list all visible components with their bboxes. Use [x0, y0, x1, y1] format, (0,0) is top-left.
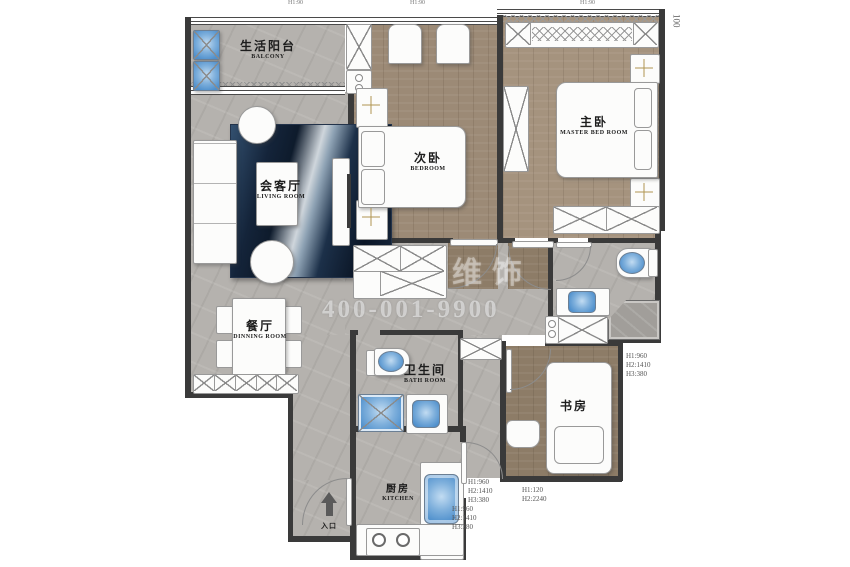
- storage-cabinet: [346, 24, 372, 70]
- bathroom-label-en: BATH ROOM: [370, 378, 480, 385]
- bathroom-label: 卫生间 BATH ROOM: [370, 364, 480, 385]
- window-seat: [436, 24, 470, 64]
- window-seat: [388, 24, 422, 64]
- cabinet-cell: [380, 271, 444, 296]
- cabinet-cell: [400, 246, 444, 272]
- bedroom-label-zh: 次卧: [368, 152, 488, 166]
- bathroom-label-zh: 卫生间: [370, 364, 480, 378]
- dimension-label: 100: [670, 14, 682, 28]
- balcony-window: [185, 17, 355, 25]
- balcony-label: 生活阳台 BALCONY: [208, 40, 328, 61]
- master-bedroom-label: 主卧 MASTER BED ROOM: [522, 116, 666, 137]
- sink-basin-icon: [412, 400, 440, 428]
- pillow: [361, 169, 385, 205]
- master-closet: [505, 22, 659, 48]
- shelf-knob-icon: [548, 320, 556, 328]
- kitchen-label-en: KITCHEN: [356, 496, 440, 503]
- dimension-block: H1:960H2:1410H3:380: [626, 352, 651, 379]
- dining-room-label-en: DINNING ROOM: [195, 334, 325, 341]
- watermark-logo: 维饰: [452, 248, 532, 292]
- wall-segment: [350, 330, 356, 432]
- kitchen-label-zh: 厨房: [356, 484, 440, 496]
- bedroom-label-en: BEDROOM: [368, 166, 488, 173]
- wall-segment: [588, 238, 660, 243]
- side-table: [238, 106, 276, 144]
- hall-cabinet: [353, 245, 447, 299]
- stove: [366, 528, 420, 556]
- dimension-block: H1:960H2:1410H3:380: [452, 505, 477, 532]
- lamp-icon: [635, 59, 653, 77]
- bath-cabinet: [556, 316, 608, 344]
- dimension-label: H1:90: [410, 0, 425, 8]
- sink-basin-icon: [568, 291, 596, 313]
- side-table: [250, 240, 294, 284]
- shelf-unit: [545, 316, 559, 344]
- laundry-cabinet: [460, 338, 502, 360]
- wall-segment: [460, 426, 466, 442]
- dining-room-label-zh: 餐厅: [195, 320, 325, 334]
- closet-cell: [633, 23, 657, 45]
- dining-room-label: 餐厅 DINNING ROOM: [195, 320, 325, 341]
- wall-segment: [288, 392, 293, 540]
- lamp-icon: [362, 96, 380, 114]
- entry-arrow: [314, 492, 344, 516]
- closet-cell: [554, 207, 607, 231]
- closet-cell: [606, 207, 657, 231]
- sofa: [193, 140, 237, 264]
- arrow-up-icon: [321, 492, 337, 503]
- balcony-label-zh: 生活阳台: [208, 40, 328, 54]
- toilet-tank: [648, 249, 658, 277]
- watermark-phone: 400-001-9900: [322, 296, 500, 324]
- bedroom-window: [355, 17, 497, 25]
- dimension-label: H1:90: [288, 0, 303, 8]
- wall-segment: [500, 476, 622, 482]
- corridor-floor: [293, 335, 353, 480]
- cabinet-cell: [276, 375, 297, 391]
- floor-plan: 入口 生活阳台 BALCONY 会客厅 LIVING ROOM 餐厅 DINNI…: [0, 0, 850, 567]
- cabinet-cell: [214, 375, 236, 391]
- washing-machine-icon: [193, 61, 220, 91]
- master-bedroom-label-en: MASTER BED ROOM: [522, 130, 666, 137]
- living-room-label-zh: 会客厅: [206, 180, 356, 194]
- study-label-zh: 书房: [522, 400, 626, 414]
- study-label: 书房: [522, 400, 626, 414]
- burner-icon: [372, 533, 386, 547]
- master-closet-hatch: [503, 15, 659, 22]
- desk-chair: [506, 420, 540, 448]
- lamp-icon: [362, 208, 380, 226]
- toilet-bowl-icon: [619, 252, 645, 274]
- wall-segment: [288, 536, 354, 542]
- cabinet-cell: [194, 375, 214, 391]
- kitchen-label: 厨房 KITCHEN: [356, 484, 440, 502]
- cabinet-cell: [354, 271, 381, 296]
- cabinet-cell: [235, 375, 257, 391]
- master-bedroom-label-zh: 主卧: [522, 116, 666, 130]
- entrance-label-zh: 入口: [312, 522, 346, 530]
- closet-cell: [506, 23, 531, 45]
- cabinet-cell: [256, 375, 277, 391]
- shower-tray: [358, 394, 404, 432]
- dimension-label: H1:90: [580, 0, 595, 8]
- arrow-stem-icon: [326, 503, 333, 516]
- living-room-label: 会客厅 LIVING ROOM: [206, 180, 356, 201]
- balcony-label-en: BALCONY: [208, 54, 328, 61]
- dimension-block: H1:960H2:1410H3:380: [468, 478, 493, 505]
- lamp-icon: [635, 183, 653, 201]
- closet-low: [553, 206, 660, 234]
- dining-chair: [284, 340, 302, 368]
- closet-rod: [532, 27, 632, 41]
- bedroom-label: 次卧 BEDROOM: [368, 152, 488, 173]
- entrance-label: 入口: [312, 522, 346, 530]
- wall-segment: [380, 330, 462, 335]
- cabinet-cell: [354, 246, 401, 272]
- dimension-block: H1:120H2:2240: [522, 486, 547, 504]
- appliance-knob-icon: [355, 74, 363, 82]
- sideboard-cabinet: [193, 374, 299, 394]
- wall-segment: [185, 17, 191, 397]
- cushion: [554, 426, 604, 464]
- shelf-knob-icon: [548, 330, 556, 338]
- burner-icon: [396, 533, 410, 547]
- living-room-label-en: LIVING ROOM: [206, 194, 356, 201]
